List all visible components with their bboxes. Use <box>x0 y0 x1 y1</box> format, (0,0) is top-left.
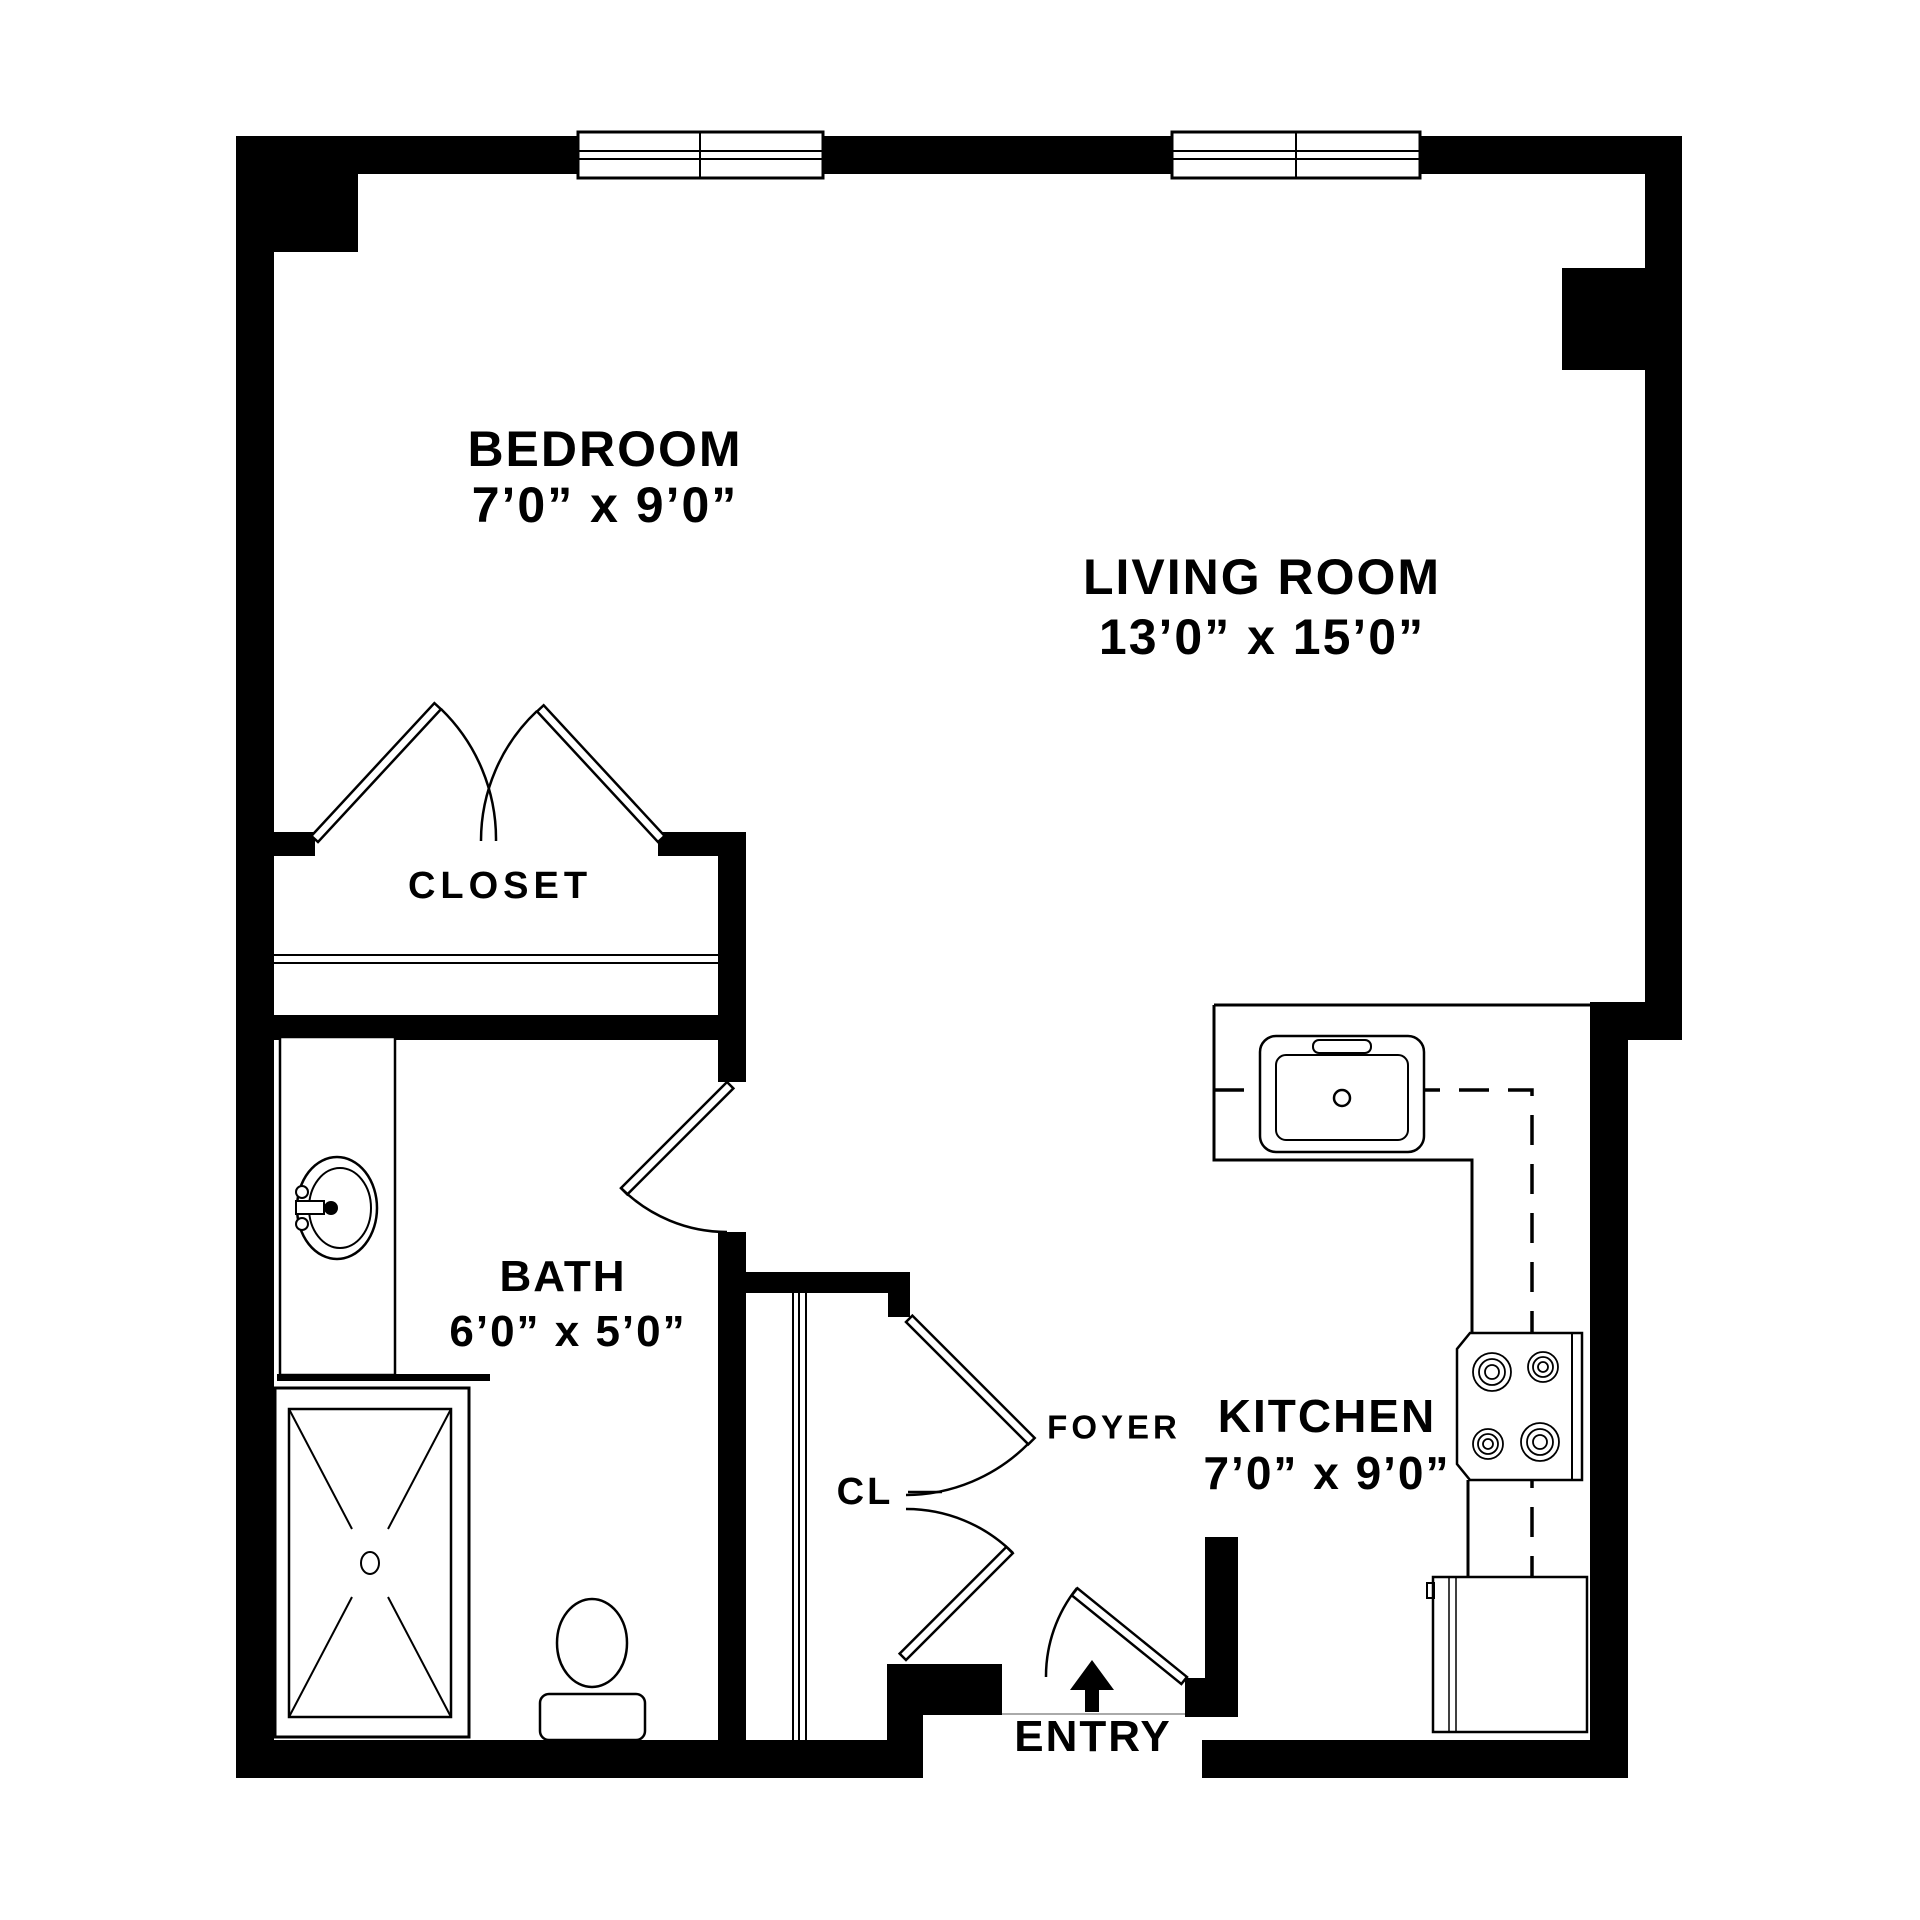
refrigerator <box>1427 1577 1587 1732</box>
wall-top <box>236 136 1682 174</box>
closet-stub-left <box>274 832 315 856</box>
living-room-label: LIVING ROOM <box>1083 552 1441 602</box>
entry-arrow-icon <box>1070 1660 1114 1712</box>
living-room-dimensions: 13’0” x 15’0” <box>1099 612 1425 662</box>
entry-label: ENTRY <box>1014 1715 1172 1759</box>
foyer-closet-door-upper <box>906 1316 1035 1495</box>
foyer-kitchen-wall <box>1205 1537 1238 1678</box>
bath-label: BATH <box>500 1255 627 1299</box>
shower <box>275 1388 469 1737</box>
floor-plan-drawing <box>0 0 1920 1920</box>
wall-right-pilaster <box>1562 268 1645 370</box>
bedroom-label: BEDROOM <box>467 424 742 474</box>
toilet <box>540 1599 645 1740</box>
foyer-north-stub <box>888 1293 910 1317</box>
walls <box>236 136 1682 1778</box>
bedroom-dimensions: 7’0” x 9’0” <box>472 480 739 530</box>
wall-right <box>1645 136 1682 1002</box>
foyer-closet-track <box>793 1293 806 1740</box>
kitchen-sink <box>1260 1036 1424 1152</box>
foyer-label: FOYER <box>1047 1411 1181 1444</box>
closet-shelf-lines <box>274 955 718 963</box>
bath-wall-stub-top <box>718 1040 746 1082</box>
entry-jamb-right <box>1185 1678 1238 1717</box>
bath-half-wall <box>277 1374 490 1381</box>
foyer-closet-door-lower <box>900 1509 1013 1660</box>
shower-drain <box>361 1552 379 1574</box>
closet-door-left <box>311 703 496 842</box>
bath-door <box>621 1082 733 1232</box>
bath-wall-lower <box>718 1232 746 1742</box>
doors <box>311 703 1187 1684</box>
kitchen-label: KITCHEN <box>1218 1393 1436 1439</box>
window-2 <box>1172 132 1420 178</box>
foyer-south-wall <box>923 1664 1002 1715</box>
entry-door <box>1046 1588 1187 1684</box>
closet-stub-right <box>658 832 746 856</box>
foyer-closet-label: CL <box>837 1473 894 1511</box>
bath-dimensions: 6’0” x 5’0” <box>449 1310 686 1354</box>
stove <box>1457 1333 1582 1480</box>
floor-plan: BEDROOM 7’0” x 9’0” LIVING ROOM 13’0” x … <box>0 0 1920 1920</box>
wall-bottom-left <box>236 1740 923 1778</box>
closet-right-wall <box>718 856 746 1015</box>
foyer-north-wall <box>745 1272 910 1293</box>
closet-door-right <box>481 705 665 842</box>
wall-left <box>236 136 274 1778</box>
window-1 <box>578 132 823 178</box>
kitchen-dimensions: 7’0” x 9’0” <box>1203 1450 1450 1496</box>
closet-label: CLOSET <box>408 867 592 905</box>
entry-jamb-left <box>887 1664 923 1778</box>
kitchen-right-wall <box>1590 1040 1628 1740</box>
wall-bottom-kitchen <box>1202 1740 1628 1778</box>
wall-right-step <box>1590 1002 1682 1040</box>
